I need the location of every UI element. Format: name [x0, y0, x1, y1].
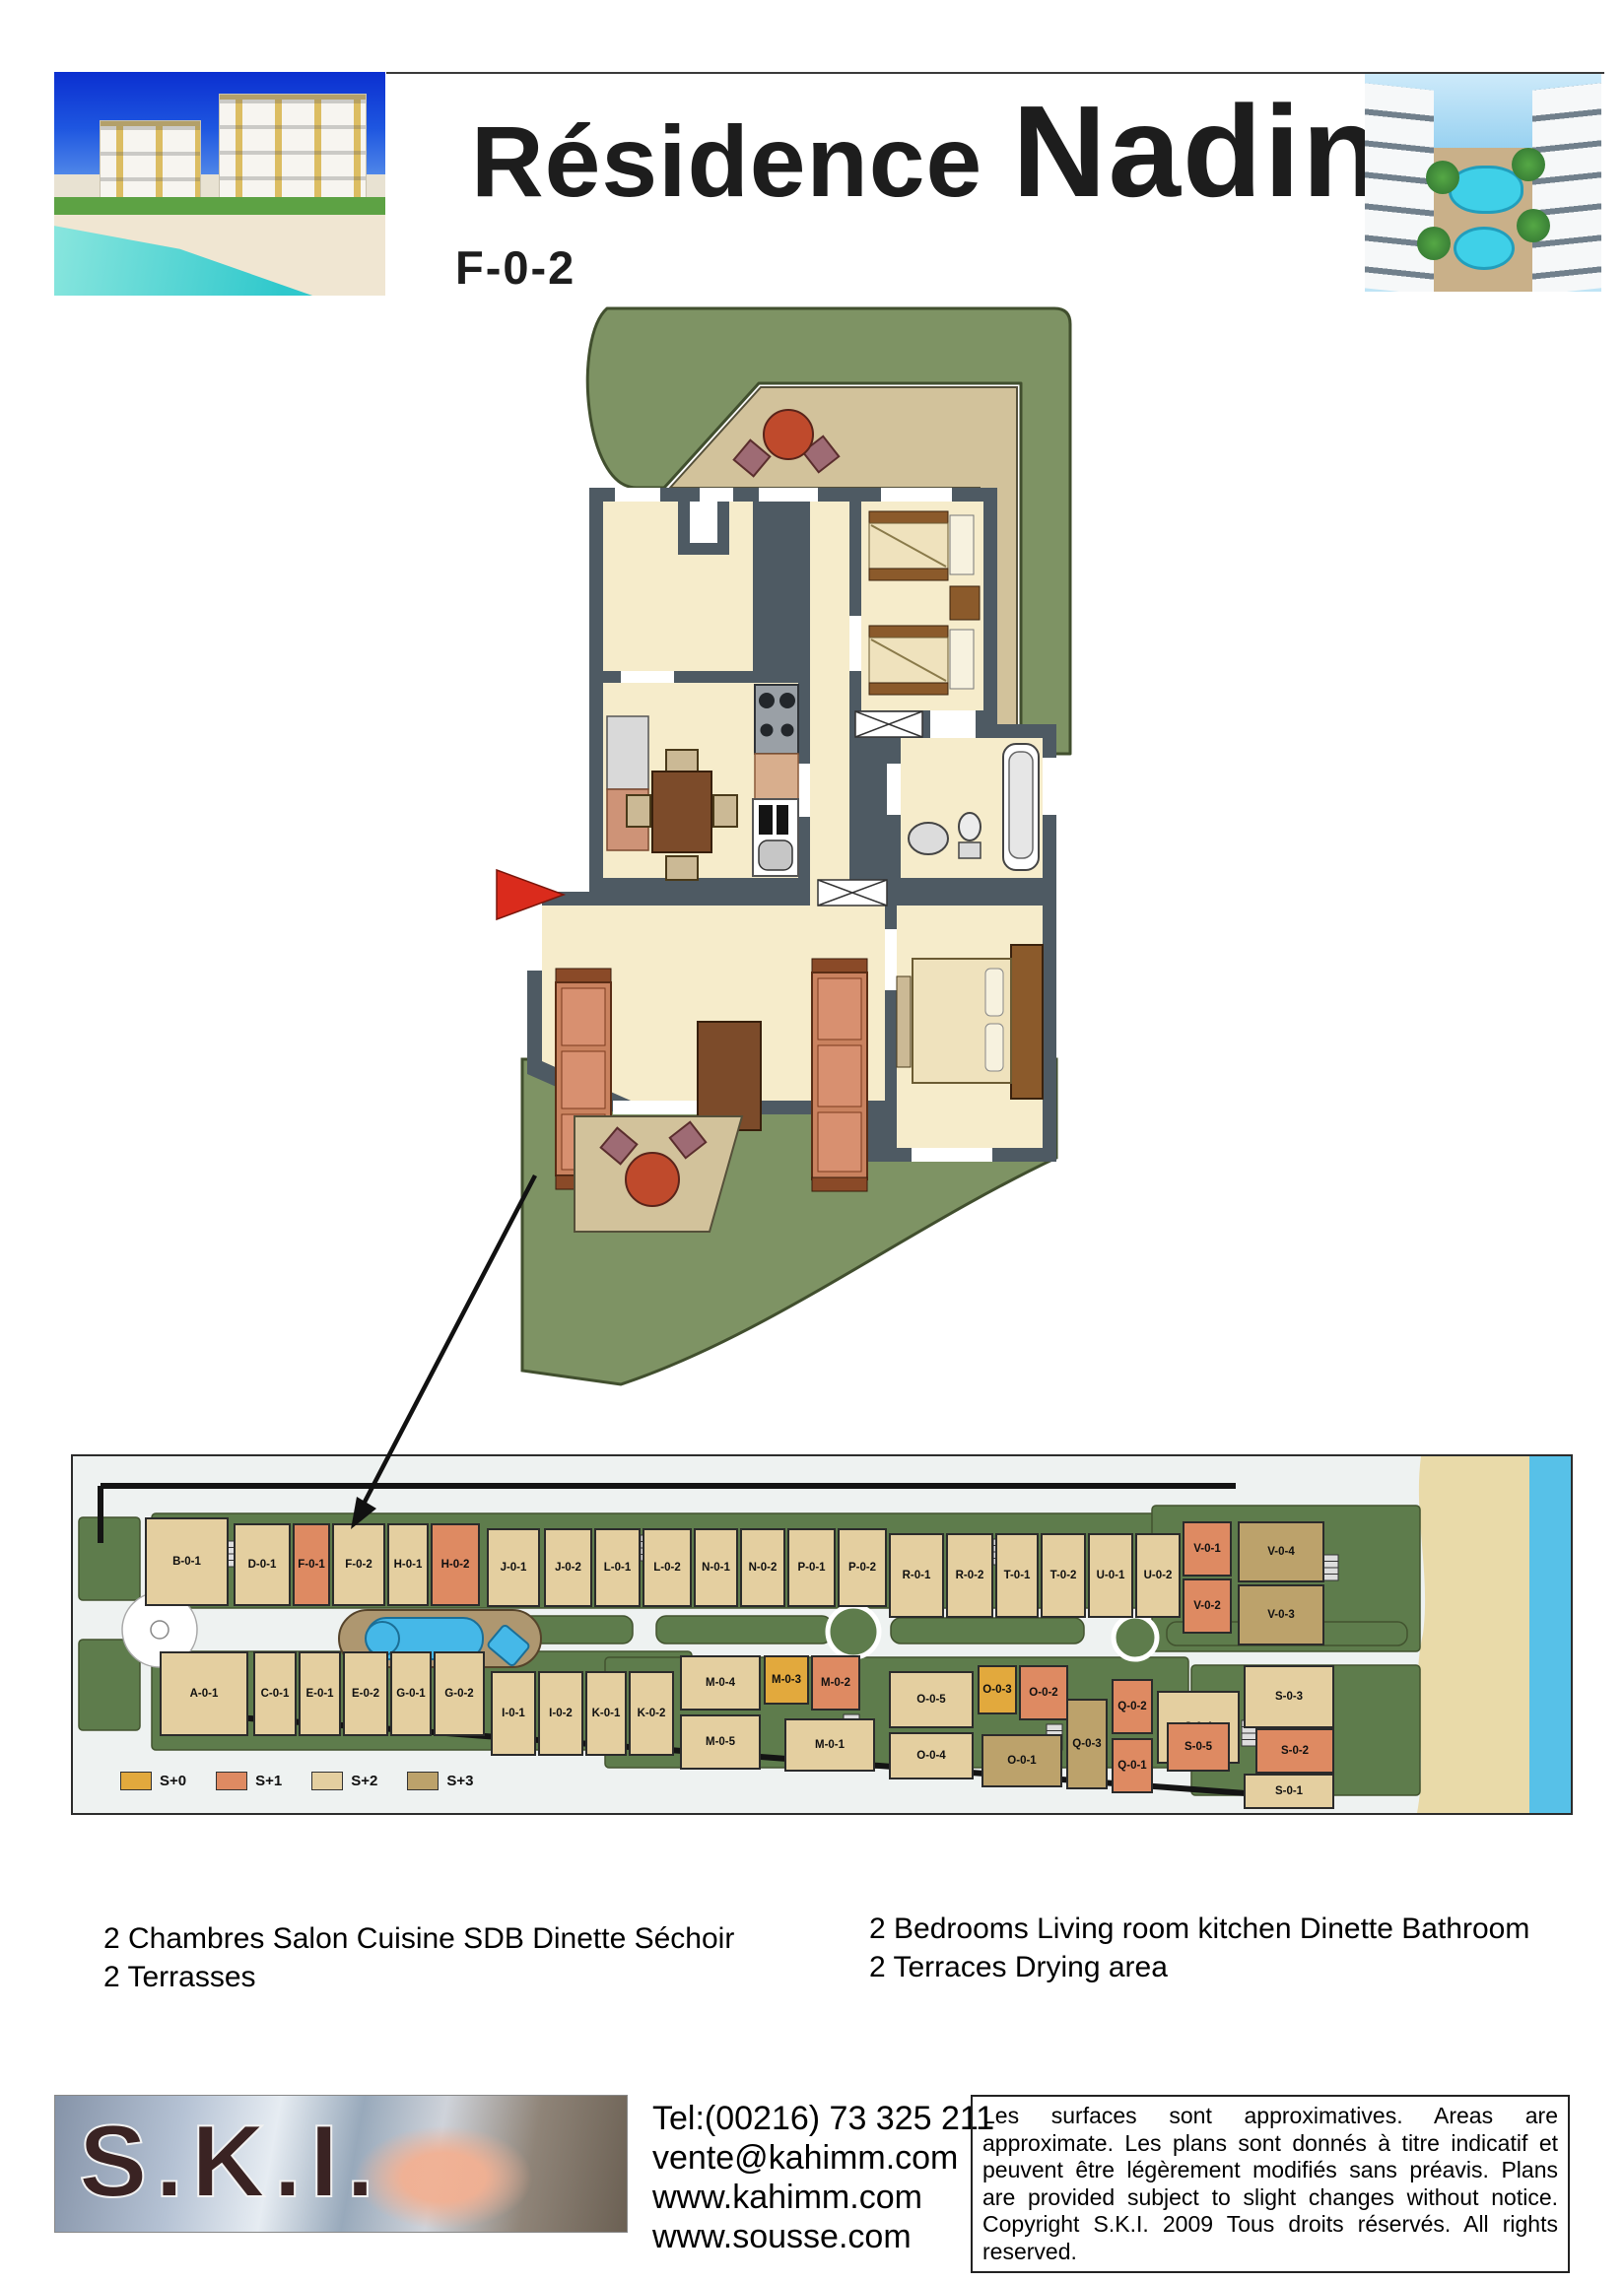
site-unit-Q-0-3: Q-0-3 [1066, 1699, 1108, 1789]
legend-swatch [407, 1772, 439, 1790]
palm-tree [1517, 209, 1550, 242]
site-unit-C-0-1: C-0-1 [253, 1651, 297, 1736]
counter-icon [755, 754, 798, 799]
photo-pool [1449, 166, 1524, 215]
legend-label: S+1 [255, 1773, 282, 1789]
site-unit-V-0-1: V-0-1 [1183, 1521, 1232, 1577]
palm-tree [1512, 148, 1545, 181]
site-unit-O-0-1: O-0-1 [981, 1734, 1062, 1787]
site-unit-O-0-5: O-0-5 [889, 1671, 974, 1728]
site-unit-V-0-2: V-0-2 [1183, 1578, 1232, 1634]
site-unit-G-0-2: G-0-2 [434, 1651, 485, 1736]
sink-icon [909, 823, 948, 854]
desc-fr-line1: 2 Chambres Salon Cuisine SDB Dinette Séc… [103, 1919, 734, 1958]
site-unit-O-0-2: O-0-2 [1019, 1665, 1068, 1720]
site-unit-U-0-1: U-0-1 [1088, 1533, 1133, 1618]
photo-building [1365, 84, 1434, 292]
site-unit-S-0-5: S-0-5 [1167, 1722, 1230, 1772]
coffee-table-icon [698, 1022, 761, 1130]
contact-line-1: Tel:(00216) 73 325 211 [652, 2099, 994, 2138]
legend-item-S+0: S+0 [120, 1772, 186, 1790]
site-unit-O-0-4: O-0-4 [889, 1732, 974, 1779]
locator-arrow [276, 1133, 562, 1557]
site-unit-Q-0-2: Q-0-2 [1112, 1679, 1153, 1734]
title-residence: Résidence [471, 104, 982, 220]
legend-swatch [120, 1772, 152, 1790]
site-unit-K-0-1: K-0-1 [585, 1671, 627, 1756]
site-unit-V-0-4: V-0-4 [1238, 1521, 1324, 1582]
legend-swatch [216, 1772, 247, 1790]
description-french: 2 Chambres Salon Cuisine SDB Dinette Séc… [103, 1919, 734, 1996]
contact-line-4: www.sousse.com [652, 2217, 994, 2256]
toilet-icon [959, 813, 981, 840]
site-unit-N-0-1: N-0-1 [694, 1528, 738, 1607]
site-unit-E-0-2: E-0-2 [343, 1651, 388, 1736]
legend-label: S+3 [446, 1773, 473, 1789]
sofa-icon [556, 969, 611, 982]
site-unit-B-0-1: B-0-1 [145, 1517, 229, 1606]
page-title: Résidence Nadine [471, 77, 1457, 226]
desc-fr-line2: 2 Terrasses [103, 1958, 734, 1996]
site-unit-R-0-1: R-0-1 [889, 1533, 944, 1618]
site-unit-M-0-4: M-0-4 [680, 1655, 761, 1711]
desc-en-line2: 2 Terraces Drying area [869, 1948, 1529, 1986]
ski-logo: S.K.I. [54, 2095, 628, 2233]
site-unit-Q-0-1: Q-0-1 [1112, 1738, 1153, 1793]
site-unit-R-0-2: R-0-2 [946, 1533, 993, 1618]
duct-niche-window [690, 502, 717, 543]
site-unit-G-0-1: G-0-1 [390, 1651, 432, 1736]
site-unit-P-0-2: P-0-2 [838, 1528, 887, 1607]
site-unit-M-0-1: M-0-1 [784, 1718, 875, 1772]
site-unit-M-0-3: M-0-3 [764, 1655, 809, 1705]
palm-tree [1417, 227, 1451, 260]
site-unit-U-0-2: U-0-2 [1135, 1533, 1181, 1618]
courtyard-pool-photo [1365, 74, 1601, 292]
unit-code: F-0-2 [455, 240, 575, 295]
ski-logo-text: S.K.I. [79, 2104, 382, 2221]
site-unit-O-0-3: O-0-3 [978, 1665, 1017, 1714]
site-unit-M-0-2: M-0-2 [811, 1655, 860, 1711]
green-roundabout [1114, 1616, 1157, 1659]
green-roundabout [828, 1606, 879, 1657]
site-unit-L-0-2: L-0-2 [643, 1528, 692, 1607]
site-legend: S+0S+1S+2S+3 [120, 1772, 473, 1790]
room-hall [810, 502, 849, 878]
beach-building-photo [54, 72, 385, 296]
site-unit-T-0-1: T-0-1 [995, 1533, 1039, 1618]
legend-item-S+3: S+3 [407, 1772, 473, 1790]
photo-pool [1454, 227, 1515, 270]
legend-item-S+2: S+2 [311, 1772, 377, 1790]
site-unit-E-0-1: E-0-1 [299, 1651, 341, 1736]
disclaimer: Les surfaces sont approximatives. Areas … [971, 2095, 1570, 2273]
legend-label: S+0 [160, 1773, 186, 1789]
site-unit-M-0-5: M-0-5 [680, 1714, 761, 1770]
description-english: 2 Bedrooms Living room kitchen Dinette B… [869, 1910, 1529, 1986]
fridge-icon [607, 716, 648, 789]
site-unit-I-0-2: I-0-2 [538, 1671, 583, 1756]
site-unit-S-0-3: S-0-3 [1244, 1665, 1334, 1728]
sofa-icon [812, 959, 867, 973]
sea [1529, 1456, 1571, 1813]
site-unit-I-0-1: I-0-1 [491, 1671, 536, 1756]
legend-swatch [311, 1772, 343, 1790]
site-unit-K-0-2: K-0-2 [629, 1671, 674, 1756]
desc-en-line1: 2 Bedrooms Living room kitchen Dinette B… [869, 1910, 1529, 1948]
site-unit-A-0-1: A-0-1 [160, 1651, 248, 1736]
site-unit-T-0-2: T-0-2 [1041, 1533, 1086, 1618]
double-bed-icon [897, 945, 1043, 1099]
site-unit-N-0-2: N-0-2 [740, 1528, 785, 1607]
site-unit-V-0-3: V-0-3 [1238, 1584, 1324, 1645]
legend-label: S+2 [351, 1773, 377, 1789]
contact-line-2: vente@kahimm.com [652, 2138, 994, 2178]
site-unit-S-0-1: S-0-1 [1244, 1774, 1334, 1809]
photo-building [1532, 84, 1601, 292]
stairs-icon [1322, 1555, 1338, 1580]
site-unit-P-0-1: P-0-1 [787, 1528, 836, 1607]
legend-item-S+1: S+1 [216, 1772, 282, 1790]
contact-block: Tel:(00216) 73 325 211vente@kahimm.comww… [652, 2099, 994, 2256]
sink-icon [759, 840, 792, 870]
site-unit-L-0-1: L-0-1 [594, 1528, 641, 1607]
site-unit-S-0-2: S-0-2 [1255, 1728, 1334, 1774]
contact-line-3: www.kahimm.com [652, 2178, 994, 2217]
